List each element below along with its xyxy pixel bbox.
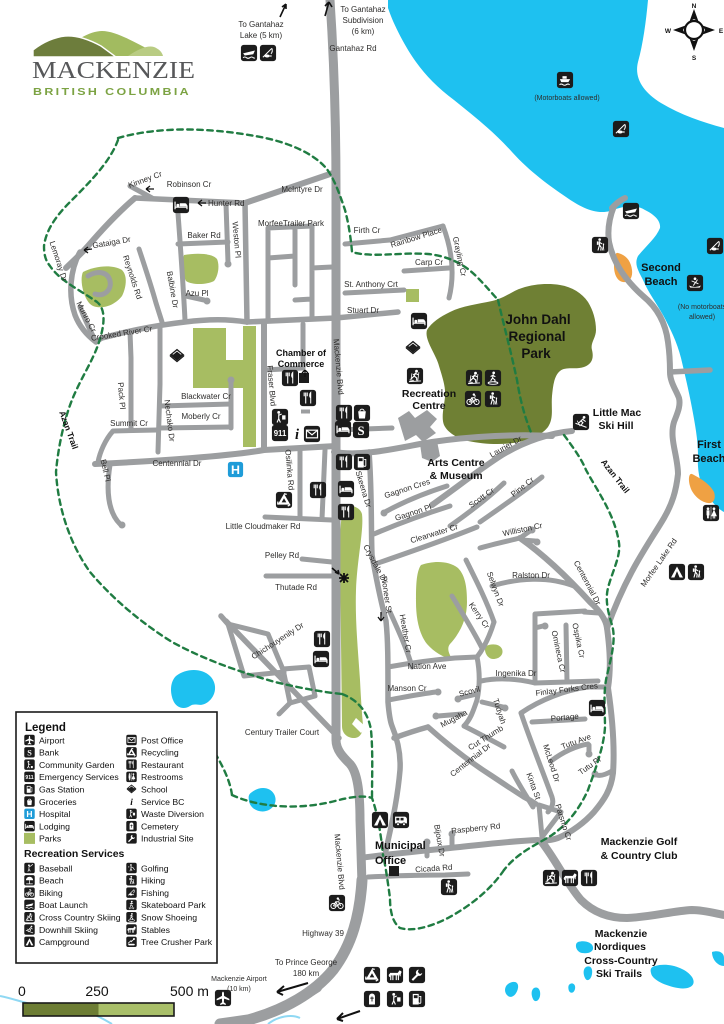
svg-text:Regional: Regional: [508, 329, 565, 344]
svg-text:To Gantahaz: To Gantahaz: [238, 20, 283, 29]
svg-text:Restaurant: Restaurant: [141, 760, 184, 770]
svg-text:Industrial Site: Industrial Site: [141, 834, 194, 844]
svg-text:Blackwater Cr: Blackwater Cr: [181, 392, 231, 401]
svg-text:Municipal: Municipal: [375, 840, 426, 852]
svg-text:John Dahl: John Dahl: [505, 312, 570, 327]
svg-text:Post Office: Post Office: [141, 735, 183, 745]
svg-text:Moberly Cr: Moberly Cr: [181, 412, 220, 421]
svg-text:Centre: Centre: [412, 400, 445, 412]
svg-text:Cross-Country: Cross-Country: [584, 955, 658, 967]
svg-text:Hiking: Hiking: [141, 876, 165, 886]
svg-text:To Prince George: To Prince George: [275, 958, 338, 967]
svg-text:Community Garden: Community Garden: [39, 760, 114, 770]
svg-text:Beach: Beach: [39, 876, 64, 886]
svg-text:Fishing: Fishing: [141, 888, 169, 898]
svg-text:Little Cloudmaker Rd: Little Cloudmaker Rd: [226, 522, 301, 531]
svg-text:Cemetery: Cemetery: [141, 821, 179, 831]
svg-text:Summit Cr: Summit Cr: [110, 419, 148, 428]
svg-text:& Country Club: & Country Club: [601, 850, 678, 862]
svg-text:Groceries: Groceries: [39, 797, 77, 807]
svg-text:Campground: Campground: [39, 937, 89, 947]
svg-text:Beach: Beach: [644, 276, 677, 288]
svg-text:Commerce: Commerce: [278, 359, 325, 369]
svg-text:& Museum: & Museum: [429, 470, 482, 482]
svg-text:500 m: 500 m: [170, 983, 209, 999]
svg-text:Mackenzie Golf: Mackenzie Golf: [601, 836, 678, 848]
svg-text:Hospital: Hospital: [39, 809, 70, 819]
svg-text:Recreation Services: Recreation Services: [24, 848, 125, 860]
svg-text:First: First: [697, 439, 721, 451]
svg-text:Lake (5 km): Lake (5 km): [240, 31, 283, 40]
svg-text:Stuart Dr: Stuart Dr: [347, 306, 379, 315]
svg-text:Gantahaz Rd: Gantahaz Rd: [329, 44, 376, 53]
svg-text:0: 0: [18, 983, 26, 999]
svg-text:Beach: Beach: [692, 453, 724, 465]
svg-text:Nordiques: Nordiques: [594, 941, 646, 953]
svg-text:Legend: Legend: [25, 722, 66, 734]
svg-text:To Gantahaz: To Gantahaz: [340, 5, 385, 14]
svg-text:(Motorboats allowed): (Motorboats allowed): [534, 95, 599, 102]
svg-text:E: E: [719, 28, 724, 35]
svg-text:Cross Country Skiing: Cross Country Skiing: [39, 913, 121, 923]
svg-text:MorfeeTrailer Park: MorfeeTrailer Park: [258, 219, 325, 228]
svg-text:Chamber of: Chamber of: [276, 348, 327, 358]
svg-text:Carp Cr: Carp Cr: [415, 258, 443, 267]
svg-text:Lodging: Lodging: [39, 821, 70, 831]
svg-text:(6 km): (6 km): [352, 27, 375, 36]
svg-text:MACKENZIE: MACKENZIE: [32, 57, 195, 84]
svg-text:Centennial Dr: Centennial Dr: [153, 459, 202, 468]
svg-text:Park: Park: [521, 346, 551, 361]
svg-text:(No motorboats: (No motorboats: [678, 304, 724, 311]
svg-text:Manson Cr: Manson Cr: [387, 684, 426, 693]
svg-text:McIntyre Dr: McIntyre Dr: [281, 185, 323, 194]
svg-text:S: S: [692, 55, 697, 62]
svg-text:Recycling: Recycling: [141, 748, 179, 758]
svg-text:allowed): allowed): [689, 314, 715, 321]
svg-text:Snow Shoeing: Snow Shoeing: [141, 913, 197, 923]
svg-text:Airport: Airport: [39, 735, 65, 745]
svg-text:Baker Rd: Baker Rd: [187, 231, 220, 240]
svg-text:Ski Trails: Ski Trails: [596, 968, 642, 980]
svg-text:Skateboard Park: Skateboard Park: [141, 900, 206, 910]
svg-text:Waste Diversion: Waste Diversion: [141, 809, 204, 819]
svg-text:N: N: [692, 3, 697, 10]
svg-text:Century Trailer Court: Century Trailer Court: [245, 728, 320, 737]
svg-text:Hunter Rd: Hunter Rd: [208, 199, 244, 208]
svg-text:Bank: Bank: [39, 748, 59, 758]
svg-text:St. Anthony Crt: St. Anthony Crt: [344, 280, 399, 289]
svg-text:BRITISH COLUMBIA: BRITISH COLUMBIA: [33, 86, 191, 98]
svg-text:Tree Crusher Park: Tree Crusher Park: [141, 937, 213, 947]
svg-text:Restrooms: Restrooms: [141, 772, 184, 782]
svg-text:Biking: Biking: [39, 888, 63, 898]
svg-text:Emergency Services: Emergency Services: [39, 772, 119, 782]
svg-text:Mackenzie: Mackenzie: [595, 928, 648, 940]
svg-text:Second: Second: [641, 262, 681, 274]
svg-text:Ralston Dr: Ralston Dr: [512, 571, 550, 580]
svg-text:Highway 39: Highway 39: [302, 929, 344, 938]
svg-text:Thutade Rd: Thutade Rd: [275, 583, 317, 592]
svg-text:Recreation: Recreation: [402, 388, 456, 400]
svg-text:Office: Office: [375, 855, 406, 867]
svg-text:180 km: 180 km: [293, 969, 320, 978]
svg-text:W: W: [665, 28, 672, 35]
svg-text:School: School: [141, 785, 168, 795]
svg-text:Arts Centre: Arts Centre: [427, 457, 484, 469]
svg-text:Ski Hill: Ski Hill: [598, 420, 633, 432]
svg-text:Boat Launch: Boat Launch: [39, 900, 88, 910]
svg-text:(10 km): (10 km): [227, 986, 251, 993]
svg-text:250: 250: [85, 983, 109, 999]
svg-text:Gas Station: Gas Station: [39, 785, 85, 795]
svg-text:Mackenzie Airport: Mackenzie Airport: [211, 976, 267, 983]
svg-text:Robinson Cr: Robinson Cr: [167, 180, 212, 189]
svg-text:Downhill Skiing: Downhill Skiing: [39, 925, 98, 935]
svg-text:Baseball: Baseball: [39, 863, 72, 873]
svg-text:Little Mac: Little Mac: [593, 407, 642, 419]
svg-text:Firth Cr: Firth Cr: [354, 226, 381, 235]
svg-text:Parks: Parks: [39, 834, 62, 844]
svg-text:Golfing: Golfing: [141, 863, 169, 873]
svg-text:Service BC: Service BC: [141, 797, 184, 807]
svg-text:Ingenika Dr: Ingenika Dr: [496, 669, 537, 678]
svg-text:Nation Ave: Nation Ave: [408, 662, 447, 671]
svg-text:Azu Pl: Azu Pl: [185, 289, 208, 298]
svg-text:Subdivision: Subdivision: [343, 16, 384, 25]
svg-text:Pelley Rd: Pelley Rd: [265, 551, 299, 560]
svg-text:Stables: Stables: [141, 925, 171, 935]
